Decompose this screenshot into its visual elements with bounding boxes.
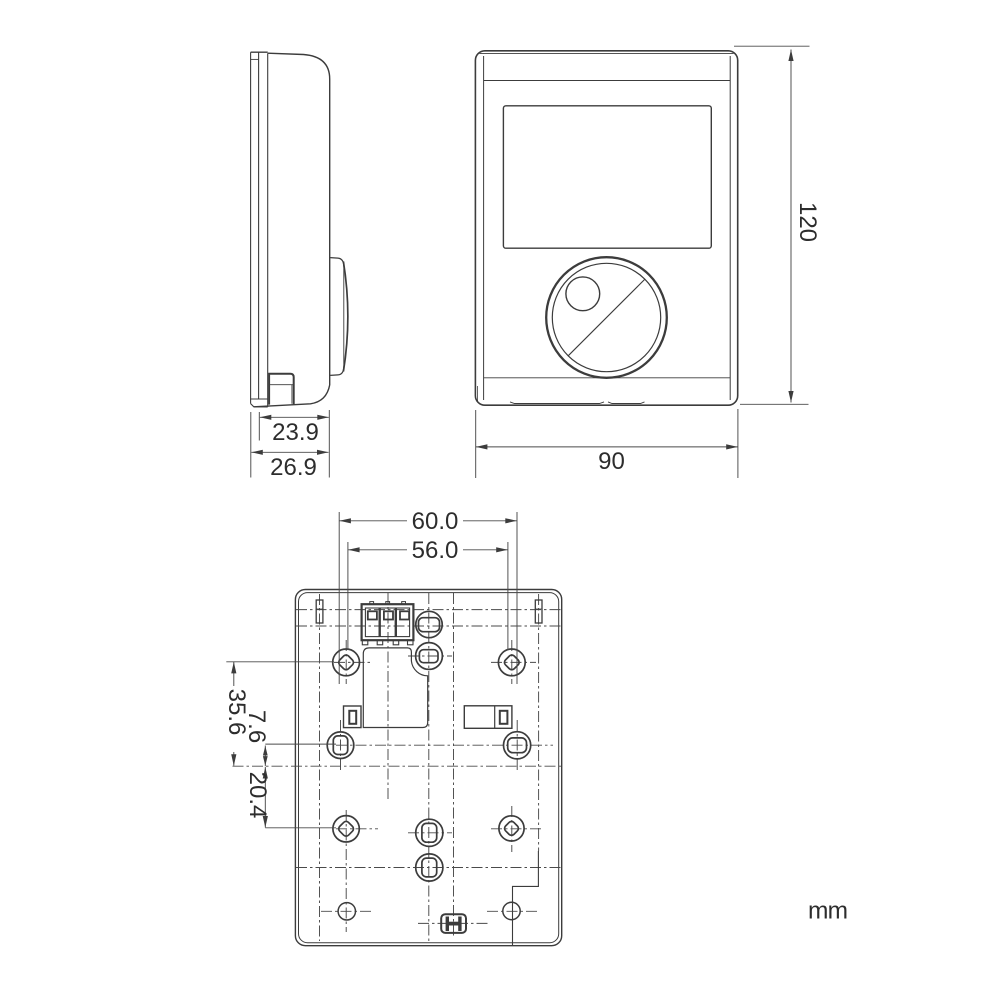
svg-text:120: 120 <box>794 202 821 242</box>
svg-text:mm: mm <box>808 898 847 925</box>
svg-text:26.9: 26.9 <box>270 454 317 481</box>
svg-text:20.4: 20.4 <box>244 772 271 819</box>
svg-text:7.6: 7.6 <box>243 710 270 743</box>
svg-text:56.0: 56.0 <box>412 537 459 564</box>
svg-text:60.0: 60.0 <box>412 508 459 535</box>
svg-text:23.9: 23.9 <box>272 419 319 446</box>
svg-text:90: 90 <box>598 448 625 475</box>
